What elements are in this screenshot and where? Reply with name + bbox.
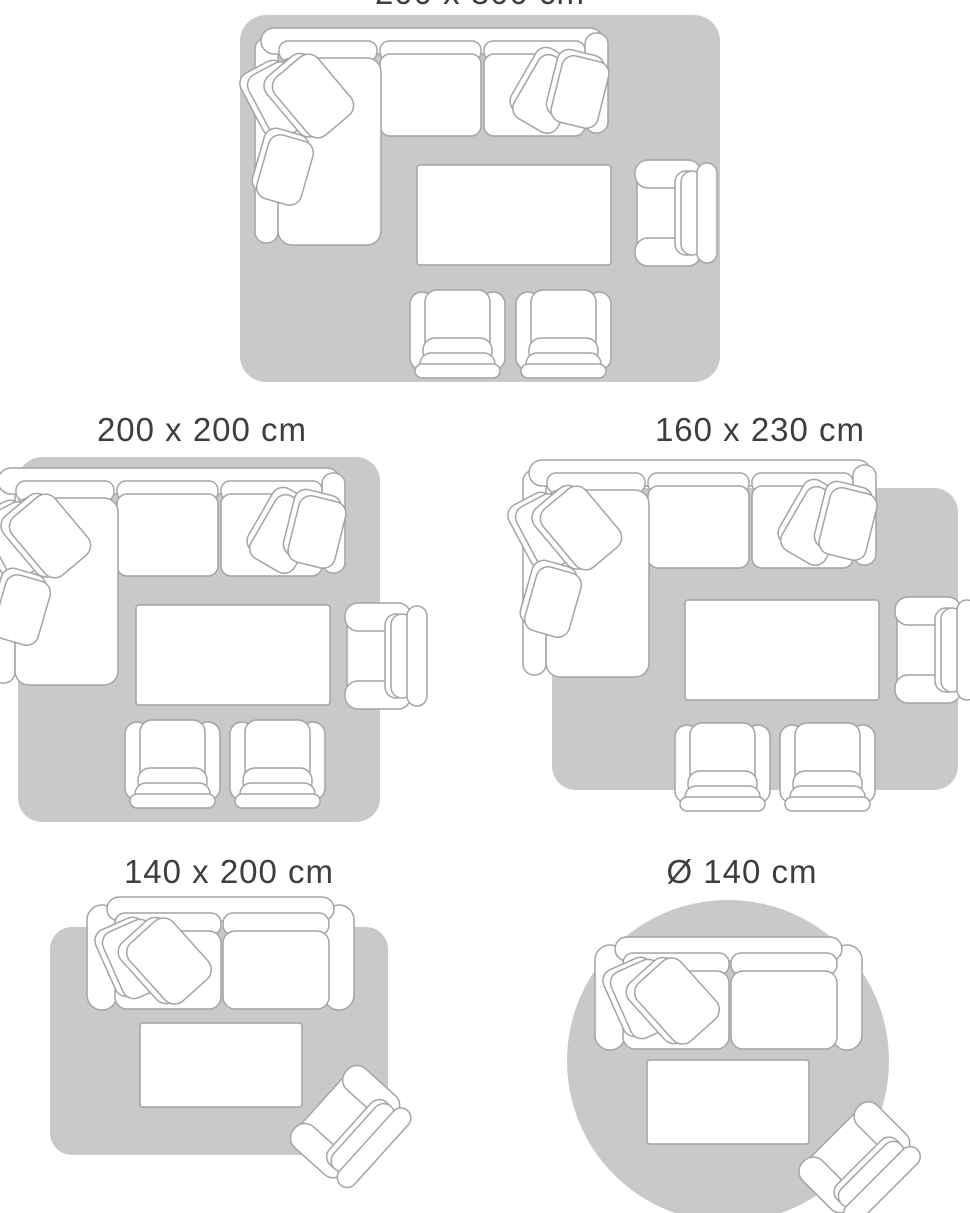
scene-200x300 [0,0,970,400]
armchair-icon [895,597,970,703]
coffee-table-icon [417,165,611,265]
armchair-icon [635,160,717,266]
coffee-table-icon [136,605,330,705]
coffee-table-icon [647,1060,809,1144]
loveseat-sofa-icon [87,897,354,1013]
club-chair-icon [516,290,611,378]
scene-200x200 [0,400,485,830]
armchair-icon [345,603,427,709]
coffee-table-icon [685,600,879,700]
club-chair-icon [230,720,325,808]
scene-140x200 [0,830,485,1213]
club-chair-icon [780,723,875,811]
loveseat-sofa-icon [595,937,862,1053]
club-chair-icon [125,720,220,808]
coffee-table-icon [140,1023,302,1107]
club-chair-icon [675,723,770,811]
scene-160x230 [485,400,970,830]
rug-size-guide: { "title": "Rug size guide with living r… [0,0,970,1213]
scene-140-round [485,830,970,1213]
club-chair-icon [410,290,505,378]
